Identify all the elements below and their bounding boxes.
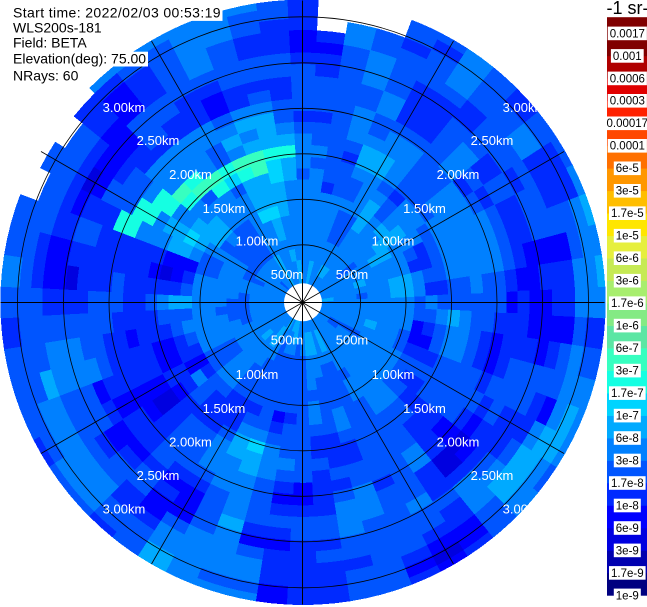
svg-text:0.0006: 0.0006 xyxy=(610,73,645,85)
svg-text:6e-7: 6e-7 xyxy=(616,343,639,355)
svg-text:2.00km: 2.00km xyxy=(437,167,480,182)
svg-text:Elevation(deg): 75.00: Elevation(deg): 75.00 xyxy=(13,50,146,66)
svg-text:2.00km: 2.00km xyxy=(169,167,212,182)
svg-text:500m: 500m xyxy=(271,333,304,348)
svg-text:1.7e-7: 1.7e-7 xyxy=(611,388,644,400)
svg-text:0.001: 0.001 xyxy=(613,51,642,63)
svg-text:1.50km: 1.50km xyxy=(403,201,446,216)
svg-text:3e-6: 3e-6 xyxy=(616,276,639,288)
svg-text:0.0003: 0.0003 xyxy=(610,96,645,108)
svg-text:1e-6: 1e-6 xyxy=(616,321,639,333)
svg-text:NRays: 60: NRays: 60 xyxy=(13,67,79,83)
svg-text:2.50km: 2.50km xyxy=(471,133,514,148)
svg-text:2.00km: 2.00km xyxy=(437,435,480,450)
svg-text:3e-9: 3e-9 xyxy=(616,545,639,557)
svg-text:1.7e-6: 1.7e-6 xyxy=(611,298,644,310)
svg-text:6e-5: 6e-5 xyxy=(616,163,639,175)
svg-text:1.00km: 1.00km xyxy=(236,234,279,249)
svg-text:1e-8: 1e-8 xyxy=(616,500,639,512)
svg-text:3.00km: 3.00km xyxy=(503,100,546,115)
svg-text:6e-9: 6e-9 xyxy=(616,523,639,535)
svg-text:2.50km: 2.50km xyxy=(137,468,180,483)
svg-text:1e-7: 1e-7 xyxy=(616,411,639,423)
svg-text:1e-9: 1e-9 xyxy=(616,590,639,602)
svg-text:Field: BETA: Field: BETA xyxy=(13,35,87,51)
svg-text:-1 sr-1: -1 sr-1 xyxy=(607,0,647,18)
svg-text:1.7e-5: 1.7e-5 xyxy=(611,208,644,220)
svg-text:500m: 500m xyxy=(336,333,369,348)
svg-text:6e-6: 6e-6 xyxy=(616,253,639,265)
svg-text:1.7e-8: 1.7e-8 xyxy=(611,478,644,490)
svg-text:1.00km: 1.00km xyxy=(236,367,279,382)
svg-text:0.0001: 0.0001 xyxy=(610,141,645,153)
svg-text:3e-5: 3e-5 xyxy=(616,186,639,198)
svg-text:500m: 500m xyxy=(336,267,369,282)
svg-text:3.00km: 3.00km xyxy=(103,502,146,517)
svg-text:1.50km: 1.50km xyxy=(403,401,446,416)
svg-text:2.50km: 2.50km xyxy=(471,468,514,483)
svg-text:3.00km: 3.00km xyxy=(503,502,546,517)
svg-text:2.00km: 2.00km xyxy=(169,435,212,450)
svg-text:1.7e-9: 1.7e-9 xyxy=(611,568,644,580)
svg-text:3.00km: 3.00km xyxy=(103,100,146,115)
svg-text:WLS200s-181: WLS200s-181 xyxy=(13,19,102,35)
svg-text:1.00km: 1.00km xyxy=(372,367,415,382)
svg-text:500m: 500m xyxy=(271,267,304,282)
svg-text:1.50km: 1.50km xyxy=(203,201,246,216)
svg-text:3e-8: 3e-8 xyxy=(616,455,639,467)
svg-text:Start time: 2022/02/03 00:53:1: Start time: 2022/02/03 00:53:19 xyxy=(13,5,221,21)
svg-text:3e-7: 3e-7 xyxy=(616,366,639,378)
svg-text:1e-5: 1e-5 xyxy=(616,231,639,243)
svg-text:6e-8: 6e-8 xyxy=(616,433,639,445)
svg-text:0.0017: 0.0017 xyxy=(610,28,645,40)
svg-text:1.50km: 1.50km xyxy=(203,401,246,416)
svg-text:2.50km: 2.50km xyxy=(137,133,180,148)
svg-text:1.00km: 1.00km xyxy=(372,234,415,249)
svg-text:0.00017: 0.00017 xyxy=(607,118,647,130)
